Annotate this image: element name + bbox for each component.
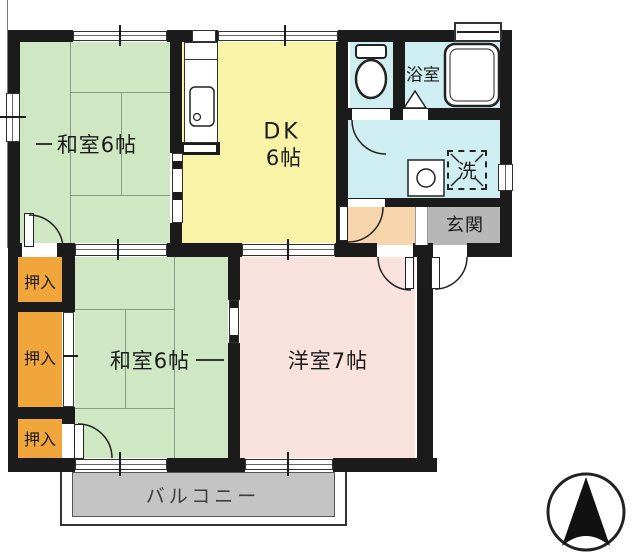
- kitchen-faucet-icon: [194, 114, 201, 121]
- room-label-genkan: 玄関: [446, 211, 484, 237]
- room-label-washitsu-bottom: 和室6帖: [110, 345, 190, 375]
- room-label-dk: DK: [263, 120, 300, 145]
- floor-plan: 和室6帖 DK 6帖 浴室 洗 玄関 押入 押入 押入 和室6帖 洋室7帖 バル…: [0, 0, 640, 560]
- room-label-yoshitsu: 洋室7帖: [288, 345, 368, 375]
- door-arc: [352, 120, 386, 154]
- bathtub-icon: [445, 44, 499, 106]
- closet-label-3: 押入: [24, 426, 56, 450]
- door-arc: [78, 424, 112, 458]
- toilet-icon: [356, 45, 386, 58]
- laundry-sink-icon: [408, 160, 444, 196]
- room-label-bathroom: 浴室: [406, 61, 440, 86]
- door-arc: [29, 215, 63, 249]
- kitchen-sink-icon: [190, 87, 214, 126]
- door-arc: [348, 207, 383, 242]
- door-arc: [435, 257, 467, 289]
- toilet-icon: [356, 60, 386, 98]
- room-label-dk-size: 6帖: [266, 142, 302, 172]
- fixtures-overlay: [0, 0, 640, 560]
- north-compass-icon: [548, 474, 624, 550]
- closet-label-2: 押入: [24, 345, 56, 369]
- room-label-washitsu-top: 和室6帖: [57, 129, 137, 159]
- balcony-label: バルコニー: [146, 482, 261, 509]
- room-label-laundry: 洗: [457, 157, 476, 184]
- bath-door-icon: [404, 91, 426, 108]
- door-arc: [378, 257, 411, 290]
- closet-label-1: 押入: [24, 269, 56, 293]
